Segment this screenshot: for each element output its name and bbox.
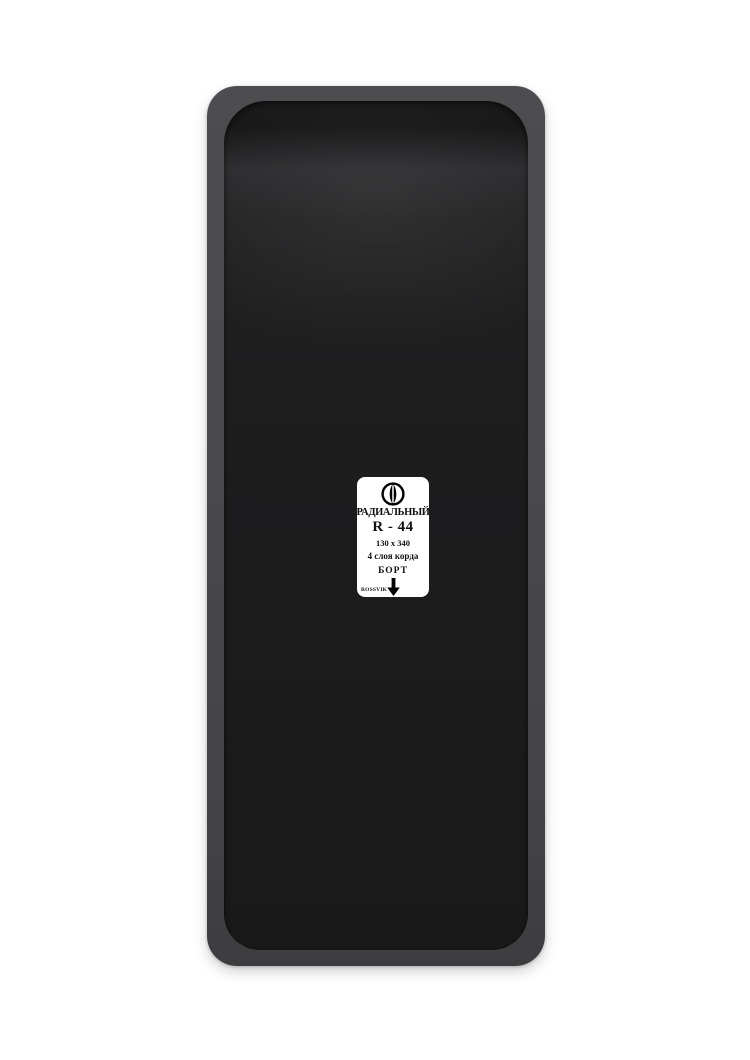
patch-type-text: РАДИАЛЬНЫЙ [356,507,429,519]
patch-plies-text: 4 слоя корда [368,551,419,562]
rossvik-emblem-icon [381,482,405,506]
patch-rubber-surface: РАДИАЛЬНЫЙ R - 44 130 x 340 4 слоя корда… [224,101,528,950]
brand-text: ROSSVIK [361,587,387,593]
patch-size-text: 130 x 340 [376,538,410,548]
patch-model-text: R - 44 [372,519,413,536]
tire-repair-patch: РАДИАЛЬНЫЙ R - 44 130 x 340 4 слоя корда… [207,86,545,966]
bead-label-text: БОРТ [378,566,408,577]
product-label: РАДИАЛЬНЫЙ R - 44 130 x 340 4 слоя корда… [357,477,429,597]
bead-direction-down-arrow-icon [386,578,401,596]
product-photo: РАДИАЛЬНЫЙ R - 44 130 x 340 4 слоя корда… [0,0,750,1060]
